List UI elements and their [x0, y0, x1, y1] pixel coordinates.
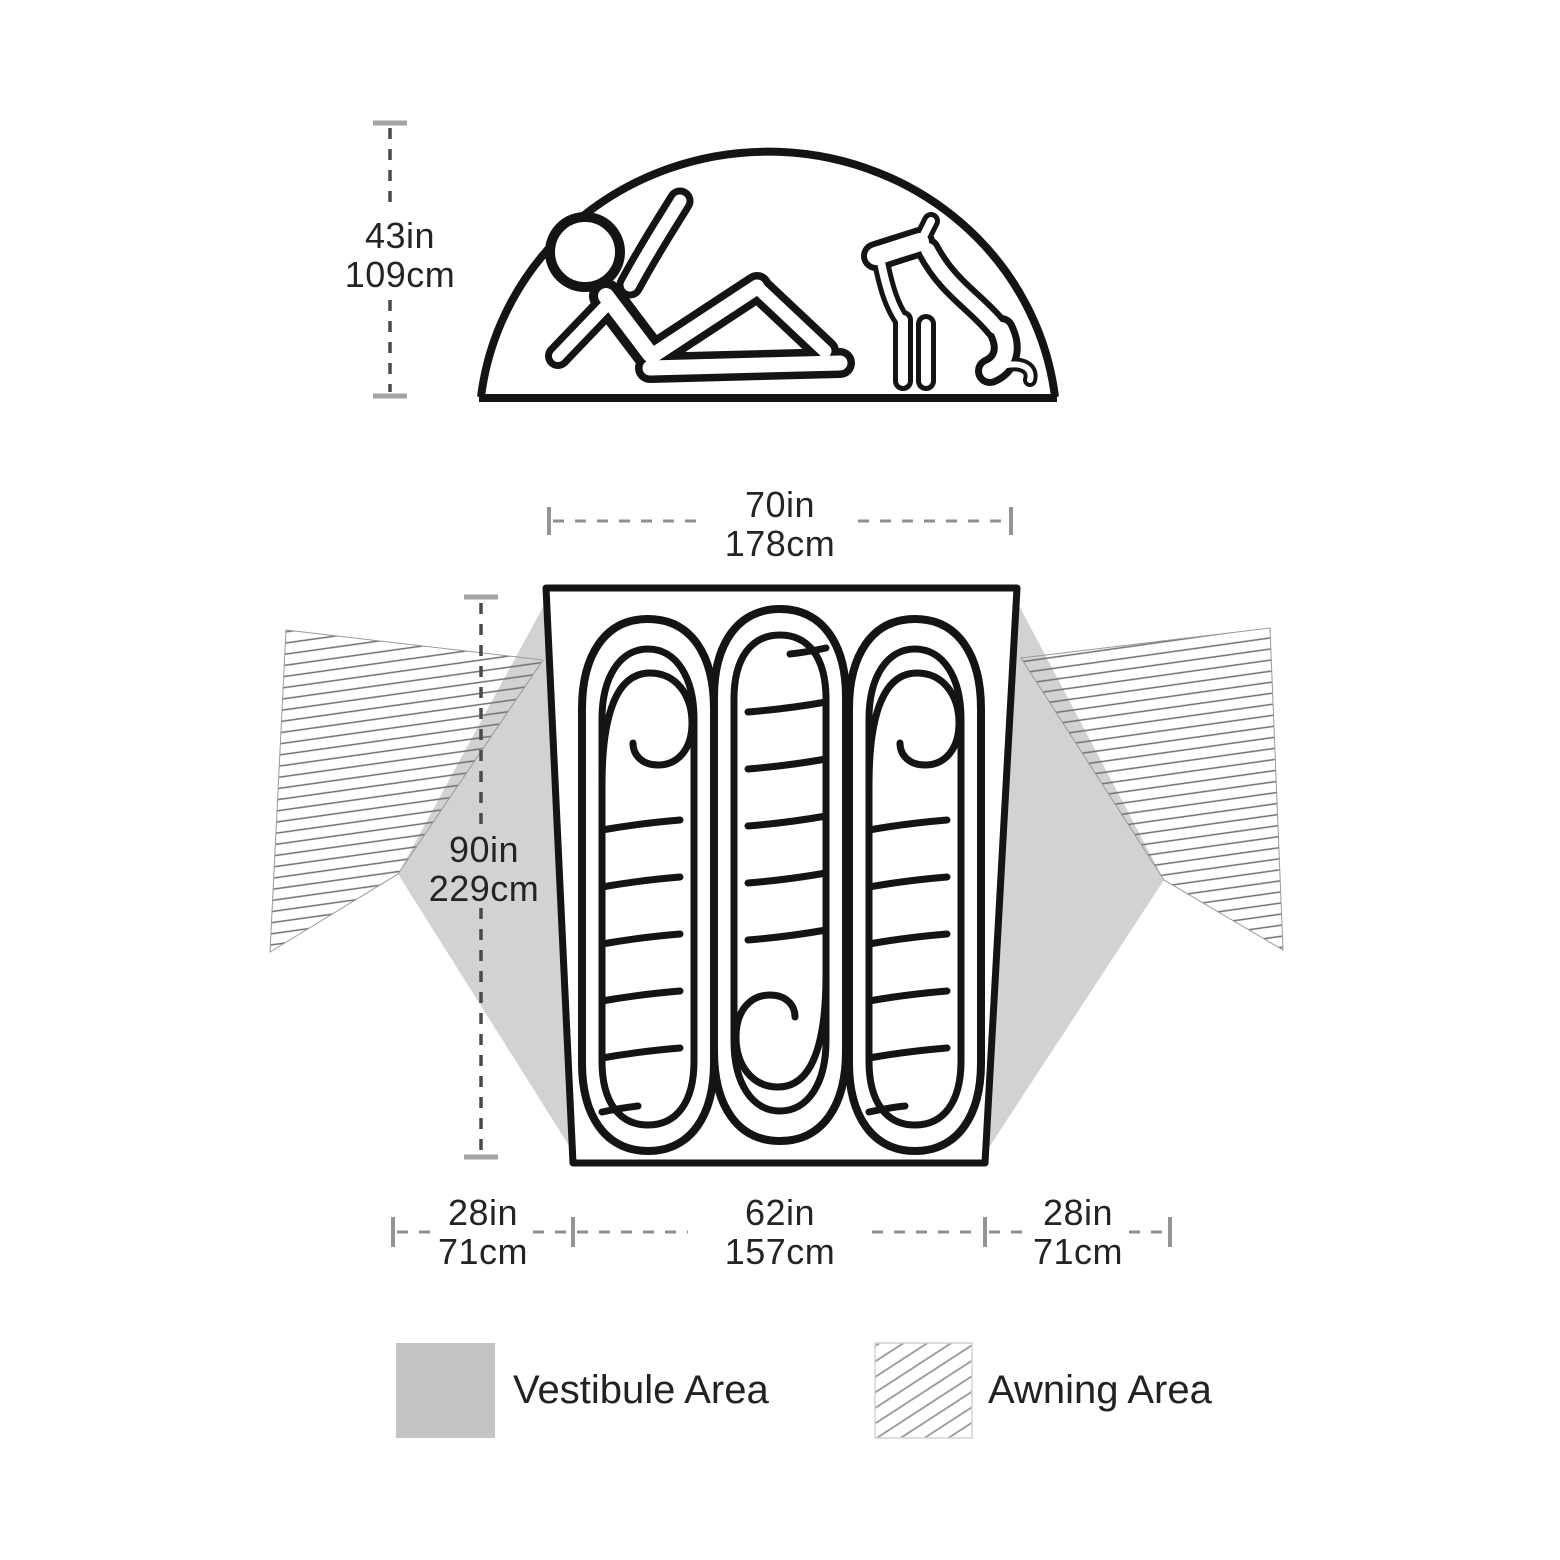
- vestibule-legend-label: Vestibule Area: [513, 1370, 769, 1410]
- bottom-center-dimension-label: 62in 157cm: [725, 1193, 836, 1271]
- awning-legend-label: Awning Area: [988, 1370, 1212, 1410]
- tent-dimensions-diagram: 43in 109cm 70in 178cm 90in 229cm 28in 71…: [0, 0, 1560, 1560]
- height-dimension-label: 43in 109cm: [345, 216, 456, 294]
- bottom-right-dimension-label: 28in 71cm: [1033, 1193, 1123, 1271]
- length-dimension-label: 90in 229cm: [429, 830, 540, 908]
- awning-swatch: [875, 1343, 972, 1438]
- side-view: [479, 152, 1057, 398]
- diagram-artwork: [0, 0, 1560, 1560]
- bottom-left-dimension-label: 28in 71cm: [438, 1193, 528, 1271]
- vestibule-swatch: [396, 1343, 495, 1438]
- top-width-imperial: 70in: [725, 485, 836, 524]
- height-imperial: 43in: [345, 216, 456, 255]
- length-imperial: 90in: [429, 830, 540, 869]
- length-metric: 229cm: [429, 869, 540, 908]
- person-head: [550, 217, 620, 287]
- top-width-metric: 178cm: [725, 524, 836, 563]
- top-width-dimension-label: 70in 178cm: [725, 485, 836, 563]
- floor-plan: [270, 588, 1283, 1163]
- height-metric: 109cm: [345, 255, 456, 294]
